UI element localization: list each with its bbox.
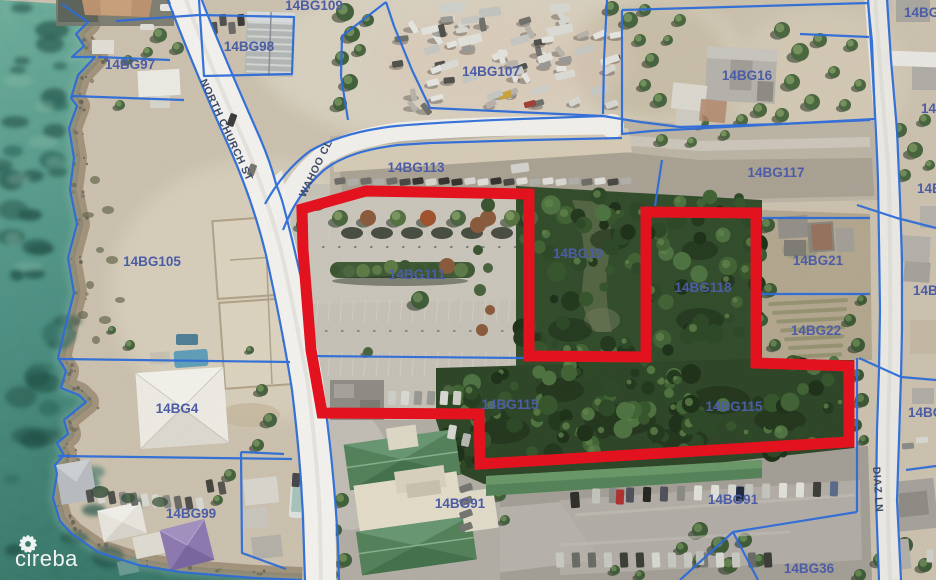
svg-text:14BG: 14BG <box>921 101 936 116</box>
svg-text:14BG22: 14BG22 <box>791 323 841 338</box>
svg-text:14BG109: 14BG109 <box>285 0 343 13</box>
svg-text:14BG19: 14BG19 <box>553 246 603 261</box>
svg-text:14BG105: 14BG105 <box>123 254 181 269</box>
svg-text:14BG15: 14BG15 <box>904 5 936 20</box>
svg-text:14BG98: 14BG98 <box>224 39 275 54</box>
svg-text:14BG: 14BG <box>913 283 936 298</box>
svg-text:14BG6: 14BG6 <box>908 405 936 420</box>
svg-text:14BG113: 14BG113 <box>387 160 445 175</box>
svg-text:14BG16: 14BG16 <box>722 68 773 83</box>
svg-text:14BG117: 14BG117 <box>747 165 804 180</box>
svg-text:14BG115: 14BG115 <box>481 397 539 412</box>
svg-text:14BG91: 14BG91 <box>708 492 759 507</box>
svg-text:14BG91: 14BG91 <box>435 496 486 511</box>
svg-text:14BG4: 14BG4 <box>156 401 199 416</box>
svg-text:cireba: cireba <box>15 546 78 571</box>
svg-text:14BG21: 14BG21 <box>793 253 844 268</box>
svg-text:14BG99: 14BG99 <box>166 506 216 521</box>
svg-text:14BG111: 14BG111 <box>389 267 446 282</box>
svg-text:14BG118: 14BG118 <box>674 280 732 295</box>
svg-text:14BG115: 14BG115 <box>705 399 763 414</box>
svg-text:14BG97: 14BG97 <box>105 57 155 72</box>
svg-text:14BG2: 14BG2 <box>917 181 936 196</box>
svg-text:14BG36: 14BG36 <box>784 561 835 576</box>
svg-text:14BG107: 14BG107 <box>462 64 520 79</box>
